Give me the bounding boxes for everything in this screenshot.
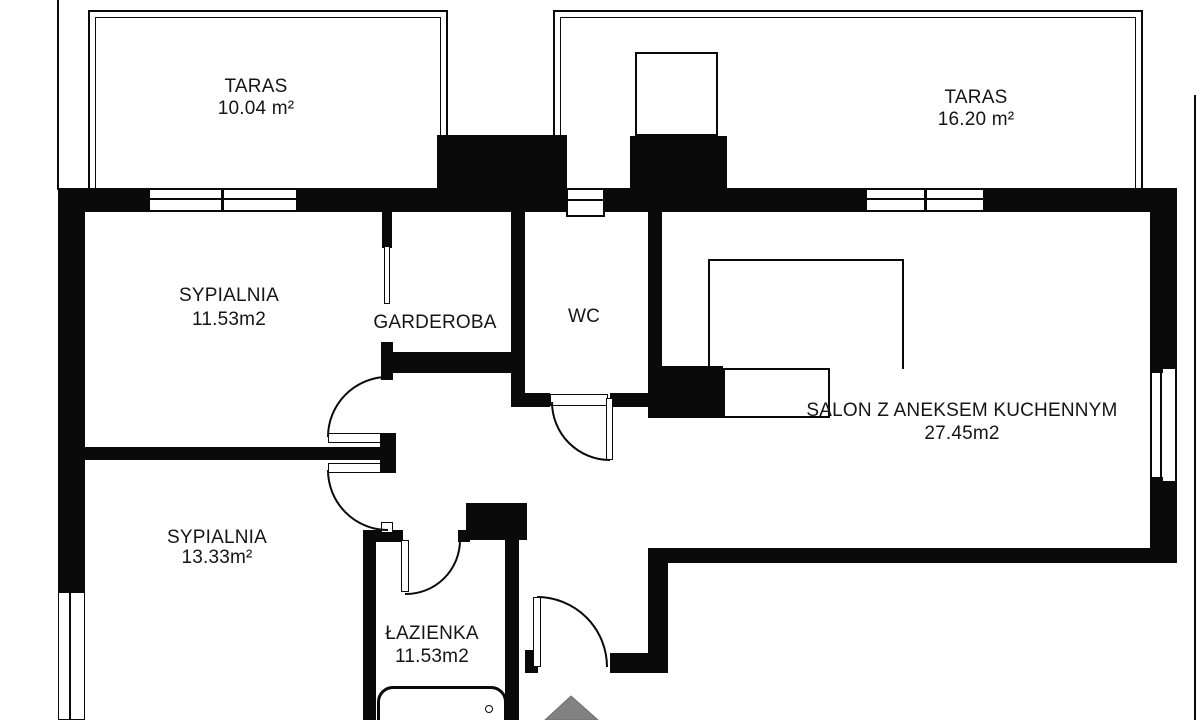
room-area-lazienka: 11.53m2 [395,647,469,667]
room-label-salon: SALON Z ANEKSEM KUCHENNYM [806,401,1117,421]
door-swing-arc-wc [552,402,610,460]
chimney-shaft-outline [635,52,718,136]
wall-left-upper [58,212,85,585]
door-frame-bedroom1 [328,433,385,443]
room-area-sypialnia-1: 11.53m2 [192,310,266,330]
room-label-garderoba: GARDEROBA [373,313,496,333]
site-boundary-line-left [57,0,59,190]
wall-pillar-between-terraces [437,135,567,212]
door-leaf-wc [606,398,613,460]
wall-top-mid-1 [298,188,437,212]
wall-garderoba-left-bar [382,212,392,248]
room-label-taras-left: TARAS [225,77,288,97]
window-salon-right-wall [1150,367,1177,483]
wall-entry-bottom [610,653,668,673]
door-swing-arc-entry [537,597,607,667]
door-post-bedrooms [380,433,396,473]
wall-chimney-block [630,136,727,212]
floor-plan: TARAS 10.04 m² TARAS 16.20 m² SYPIALNIA … [0,0,1200,720]
window-bedroom2-left-wall [58,592,85,720]
entrance-marker-triangle [545,696,598,720]
window-salon-terrace [865,188,985,212]
bathtub [377,686,507,720]
window-right-cap-top [1150,367,1163,373]
window-glazing-line [69,593,71,719]
wall-bathroom-corner-block [466,503,527,540]
wall-top-right [985,188,1177,212]
door-swing-arc-bedroom1 [328,377,388,437]
door-leaf-entry [533,597,541,667]
kitchen-zone-line-v2 [902,259,904,369]
door-frame-wc [550,394,608,406]
door-leaf-garderoba-sliding [384,246,390,304]
kitchen-zone-line-h [708,259,904,261]
room-area-salon: 27.45m2 [924,424,999,444]
room-area-taras-right: 16.20 m² [938,110,1015,130]
room-label-taras-right: TARAS [945,88,1008,108]
wall-salon-bottom [648,548,1177,563]
wall-wc-bottom-left [511,393,550,407]
wall-top-mid-2 [603,188,630,212]
door-jamb-bathroom-notch [381,522,393,533]
wall-kitchen-block [648,366,723,418]
room-label-wc: WC [568,307,600,327]
wall-garderoba-bottom [381,352,512,373]
wall-top-left [58,188,148,212]
window-bedroom1-terrace [148,188,298,212]
room-label-sypialnia-1: SYPIALNIA [179,286,279,306]
room-label-sypialnia-2: SYPIALNIA [167,528,267,548]
wall-right-upper [1150,212,1177,367]
room-area-sypialnia-2: 13.33m² [181,548,252,568]
door-leaf-bathroom [401,540,409,592]
window-glazing-line [1160,369,1162,481]
window-mullion [924,190,927,210]
kitchen-zone-line-v1 [708,259,710,367]
wall-top-mid-3 [727,188,865,212]
wall-bathroom-right [505,540,519,720]
bathtub-drain [485,705,493,713]
door-swing-arc-bathroom [405,540,460,594]
window-glazing-line [568,199,603,201]
wall-bathroom-left [363,530,376,720]
room-area-taras-left: 10.04 m² [218,99,295,119]
site-boundary-line-right [1194,95,1196,720]
window-mullion [221,190,224,210]
door-frame-bedroom2 [328,463,385,473]
wall-wc-left [511,212,525,407]
window-right-cap-bottom [1150,477,1163,483]
wall-salon-left [648,212,662,368]
window-wc-small [566,188,605,217]
door-swing-arc-bedroom2 [328,470,388,530]
wall-entry-vertical [648,548,668,653]
room-label-lazienka: ŁAZIENKA [385,624,478,644]
wall-left-window-cap [58,585,85,592]
wall-bedroom-divider [85,447,383,460]
